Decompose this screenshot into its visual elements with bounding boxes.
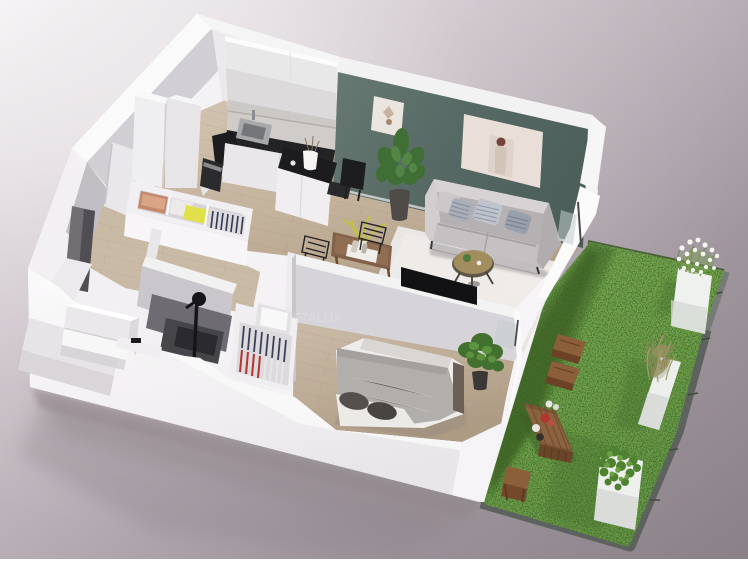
svg-text:ETALU: ETALU (505, 281, 546, 296)
svg-text:FTALUX: FTALUX (293, 310, 342, 325)
